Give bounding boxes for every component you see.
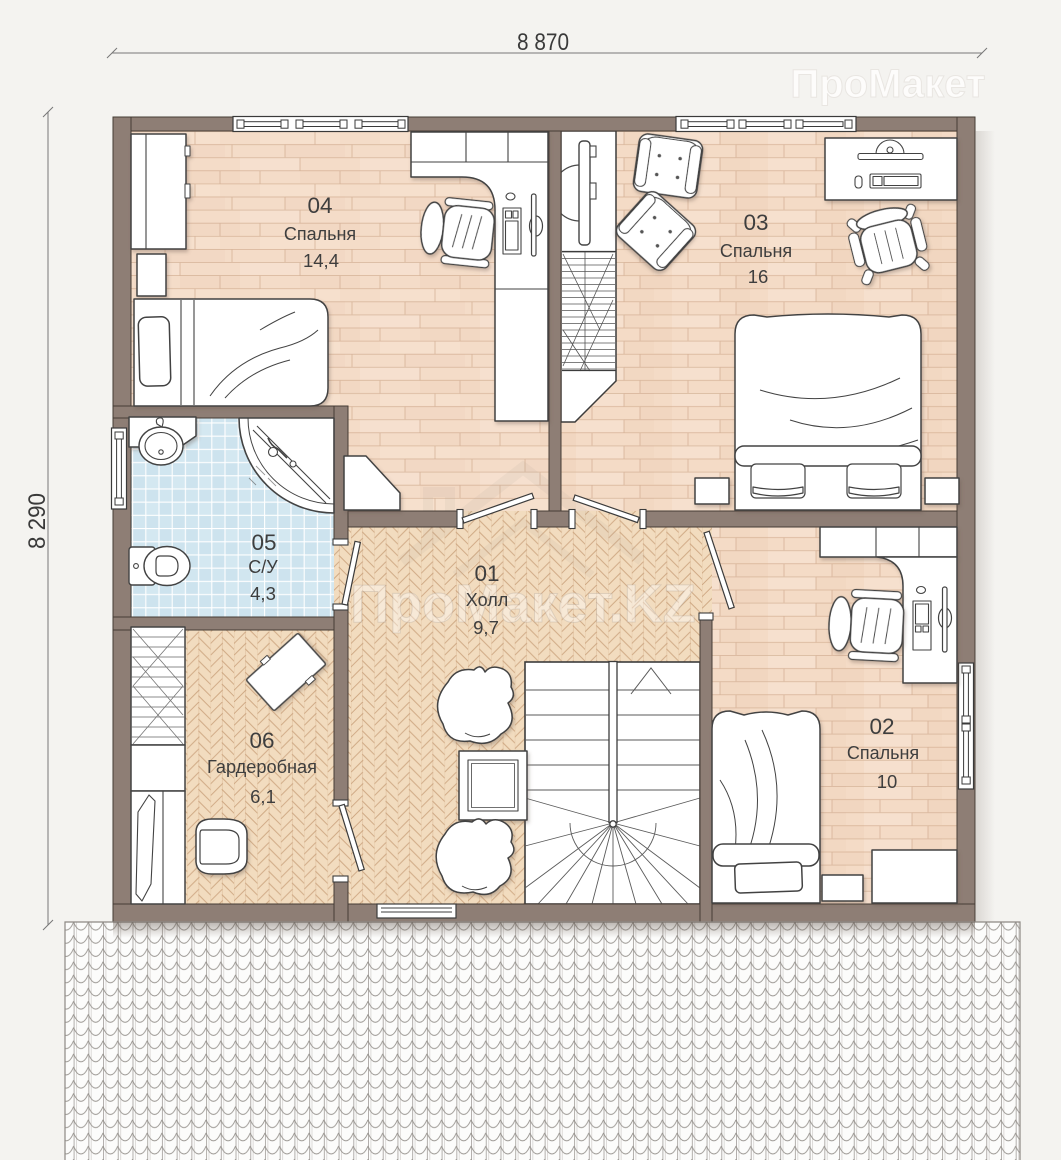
- svg-text:Гардеробная: Гардеробная: [207, 757, 317, 777]
- svg-text:Спальня: Спальня: [720, 241, 792, 261]
- svg-text:4,3: 4,3: [250, 583, 276, 604]
- svg-text:ПроМакет: ПроМакет: [791, 62, 986, 106]
- svg-text:9,7: 9,7: [473, 617, 499, 638]
- svg-text:8 290: 8 290: [24, 493, 51, 549]
- svg-text:01: 01: [474, 561, 499, 586]
- svg-text:02: 02: [869, 714, 894, 739]
- svg-text:05: 05: [251, 530, 276, 555]
- svg-text:06: 06: [249, 728, 274, 753]
- svg-text:10: 10: [877, 771, 898, 792]
- svg-text:Спальня: Спальня: [847, 743, 919, 763]
- svg-text:04: 04: [307, 193, 332, 218]
- svg-text:ПроМакет.KZ: ПроМакет.KZ: [350, 574, 696, 634]
- svg-text:14,4: 14,4: [303, 250, 339, 271]
- svg-text:16: 16: [748, 266, 769, 287]
- svg-text:С/У: С/У: [248, 557, 278, 577]
- svg-text:Холл: Холл: [466, 590, 508, 610]
- svg-text:6,1: 6,1: [250, 786, 276, 807]
- svg-text:03: 03: [743, 210, 768, 235]
- svg-text:Спальня: Спальня: [284, 224, 356, 244]
- svg-text:8 870: 8 870: [517, 29, 569, 56]
